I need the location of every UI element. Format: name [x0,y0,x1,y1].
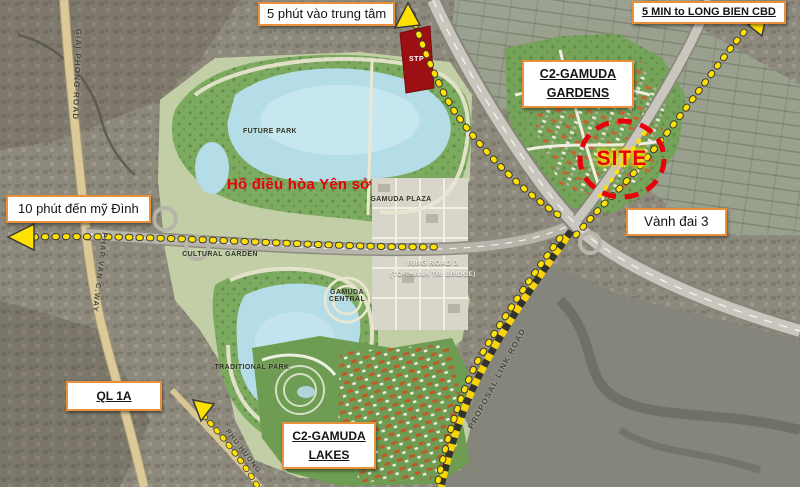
stp-label: STP [409,56,424,63]
satellite-map [0,0,800,487]
lake-name-label: Hồ điều hòa Yên sở [227,176,371,193]
thanh-tri-bridge-label: (TO THANH TRI BRIDGE) [386,271,480,278]
callout-gamuda-gardens: C2-GAMUDA GARDENS [522,60,634,108]
callout-gamuda-lakes: C2-GAMUDA LAKES [282,422,376,469]
ring-road-3-label: RING ROAD 3 [394,260,472,267]
callout-to-center: 5 phút vào trung tâm [258,2,395,26]
gamuda-plaza-label: GAMUDA PLAZA [368,196,434,203]
cultural-garden-label: CULTURAL GARDEN [182,251,258,258]
callout-to-my-dinh: 10 phút đến mỹ Đình [6,195,151,223]
future-park-label: FUTURE PARK [238,128,302,135]
site-label: SITE [592,147,652,171]
gamuda-central-label: GAMUDA CENTRAL [312,289,382,303]
callout-to-long-bien: 5 MIN to LONG BIEN CBD [632,1,786,24]
callout-ql1a: QL 1A [66,381,162,411]
map-canvas: 5 phút vào trung tâm 5 MIN to LONG BIEN … [0,0,800,487]
callout-vanh-dai-3: Vành đai 3 [626,208,727,236]
traditional-park-label: TRADITIONAL PARK [212,364,292,371]
